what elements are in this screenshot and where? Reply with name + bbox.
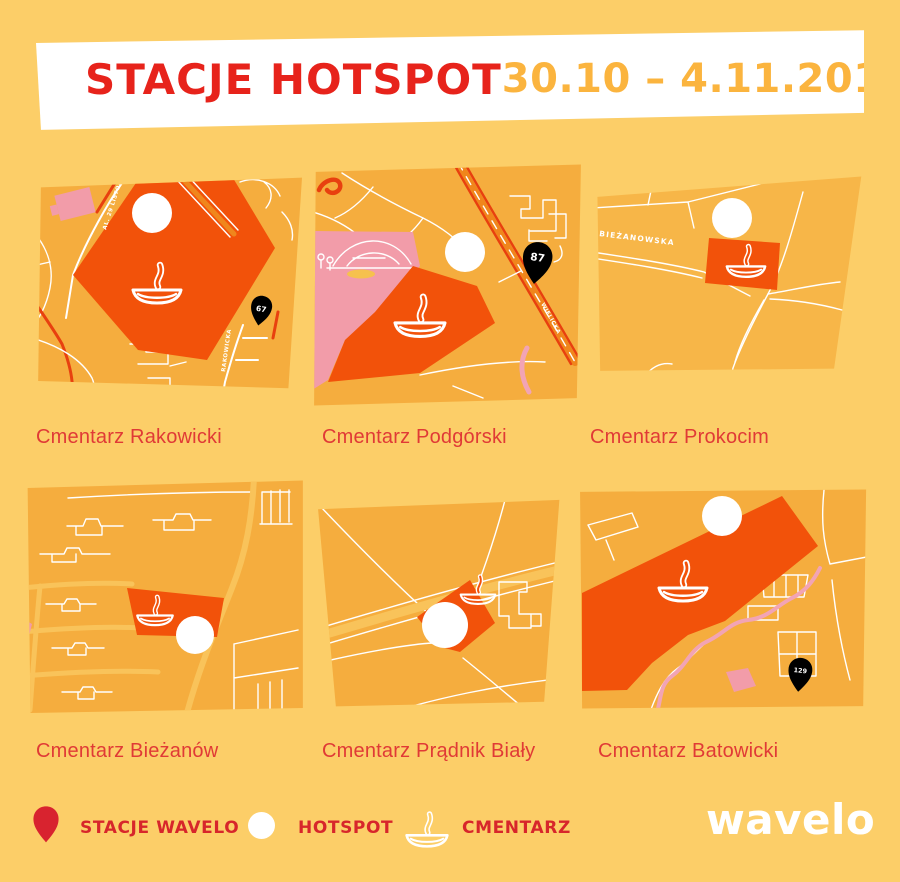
wavelo-pin-icon [33, 804, 59, 846]
date-range: 30.10 – 4.11.2019 [502, 56, 900, 102]
map-tile-cmentarz-biezanow [22, 478, 304, 728]
map-tile-cmentarz-pradnik-bialy [313, 486, 567, 718]
wavelo-logo: wavelo [706, 795, 875, 844]
legend-station-label: STACJE WAVELO [80, 818, 239, 838]
svg-text:129: 129 [793, 666, 808, 675]
map-tile-cmentarz-batowicki: 129 [578, 480, 872, 718]
tile-label-pradnik-bialy: Cmentarz Prądnik Biały [322, 740, 535, 763]
poster-page: STACJE HOTSPOT 30.10 – 4.11.2019 [0, 0, 900, 882]
svg-text:67: 67 [255, 304, 267, 315]
cemetery-area [705, 238, 780, 290]
cmentarz-candle-icon [399, 806, 455, 850]
header-banner: STACJE HOTSPOT 30.10 – 4.11.2019 [36, 26, 864, 132]
hotspot-circle [702, 496, 742, 536]
map-tile-cmentarz-rakowicki: AL. 29 LISTOPADA RAKOWICKA 67 [30, 168, 302, 410]
tile-label-batowicki: Cmentarz Batowicki [598, 740, 778, 763]
tile-label-rakowicki: Cmentarz Rakowicki [36, 426, 222, 449]
hotspot-circle [445, 232, 485, 272]
page-title: STACJE HOTSPOT [85, 55, 502, 104]
svg-text:87: 87 [529, 251, 545, 265]
tile-label-biezanow: Cmentarz Bieżanów [36, 740, 218, 763]
hotspot-circle [132, 193, 172, 233]
tile-label-podgorski: Cmentarz Podgórski [322, 426, 507, 449]
hotspot-icon [248, 812, 275, 839]
tile-label-prokocim: Cmentarz Prokocim [590, 426, 769, 449]
legend-hotspot-label: HOTSPOT [298, 818, 393, 838]
map-tile-cmentarz-prokocim: BIEŻANOWSKA [592, 172, 864, 398]
hotspot-circle [176, 616, 214, 654]
hotspot-circle [422, 602, 468, 648]
map-tile-cmentarz-podgorski: WIELICKA 87 [313, 162, 585, 408]
hotspot-circle [712, 198, 752, 238]
legend-cemetery-label: CMENTARZ [462, 818, 571, 838]
